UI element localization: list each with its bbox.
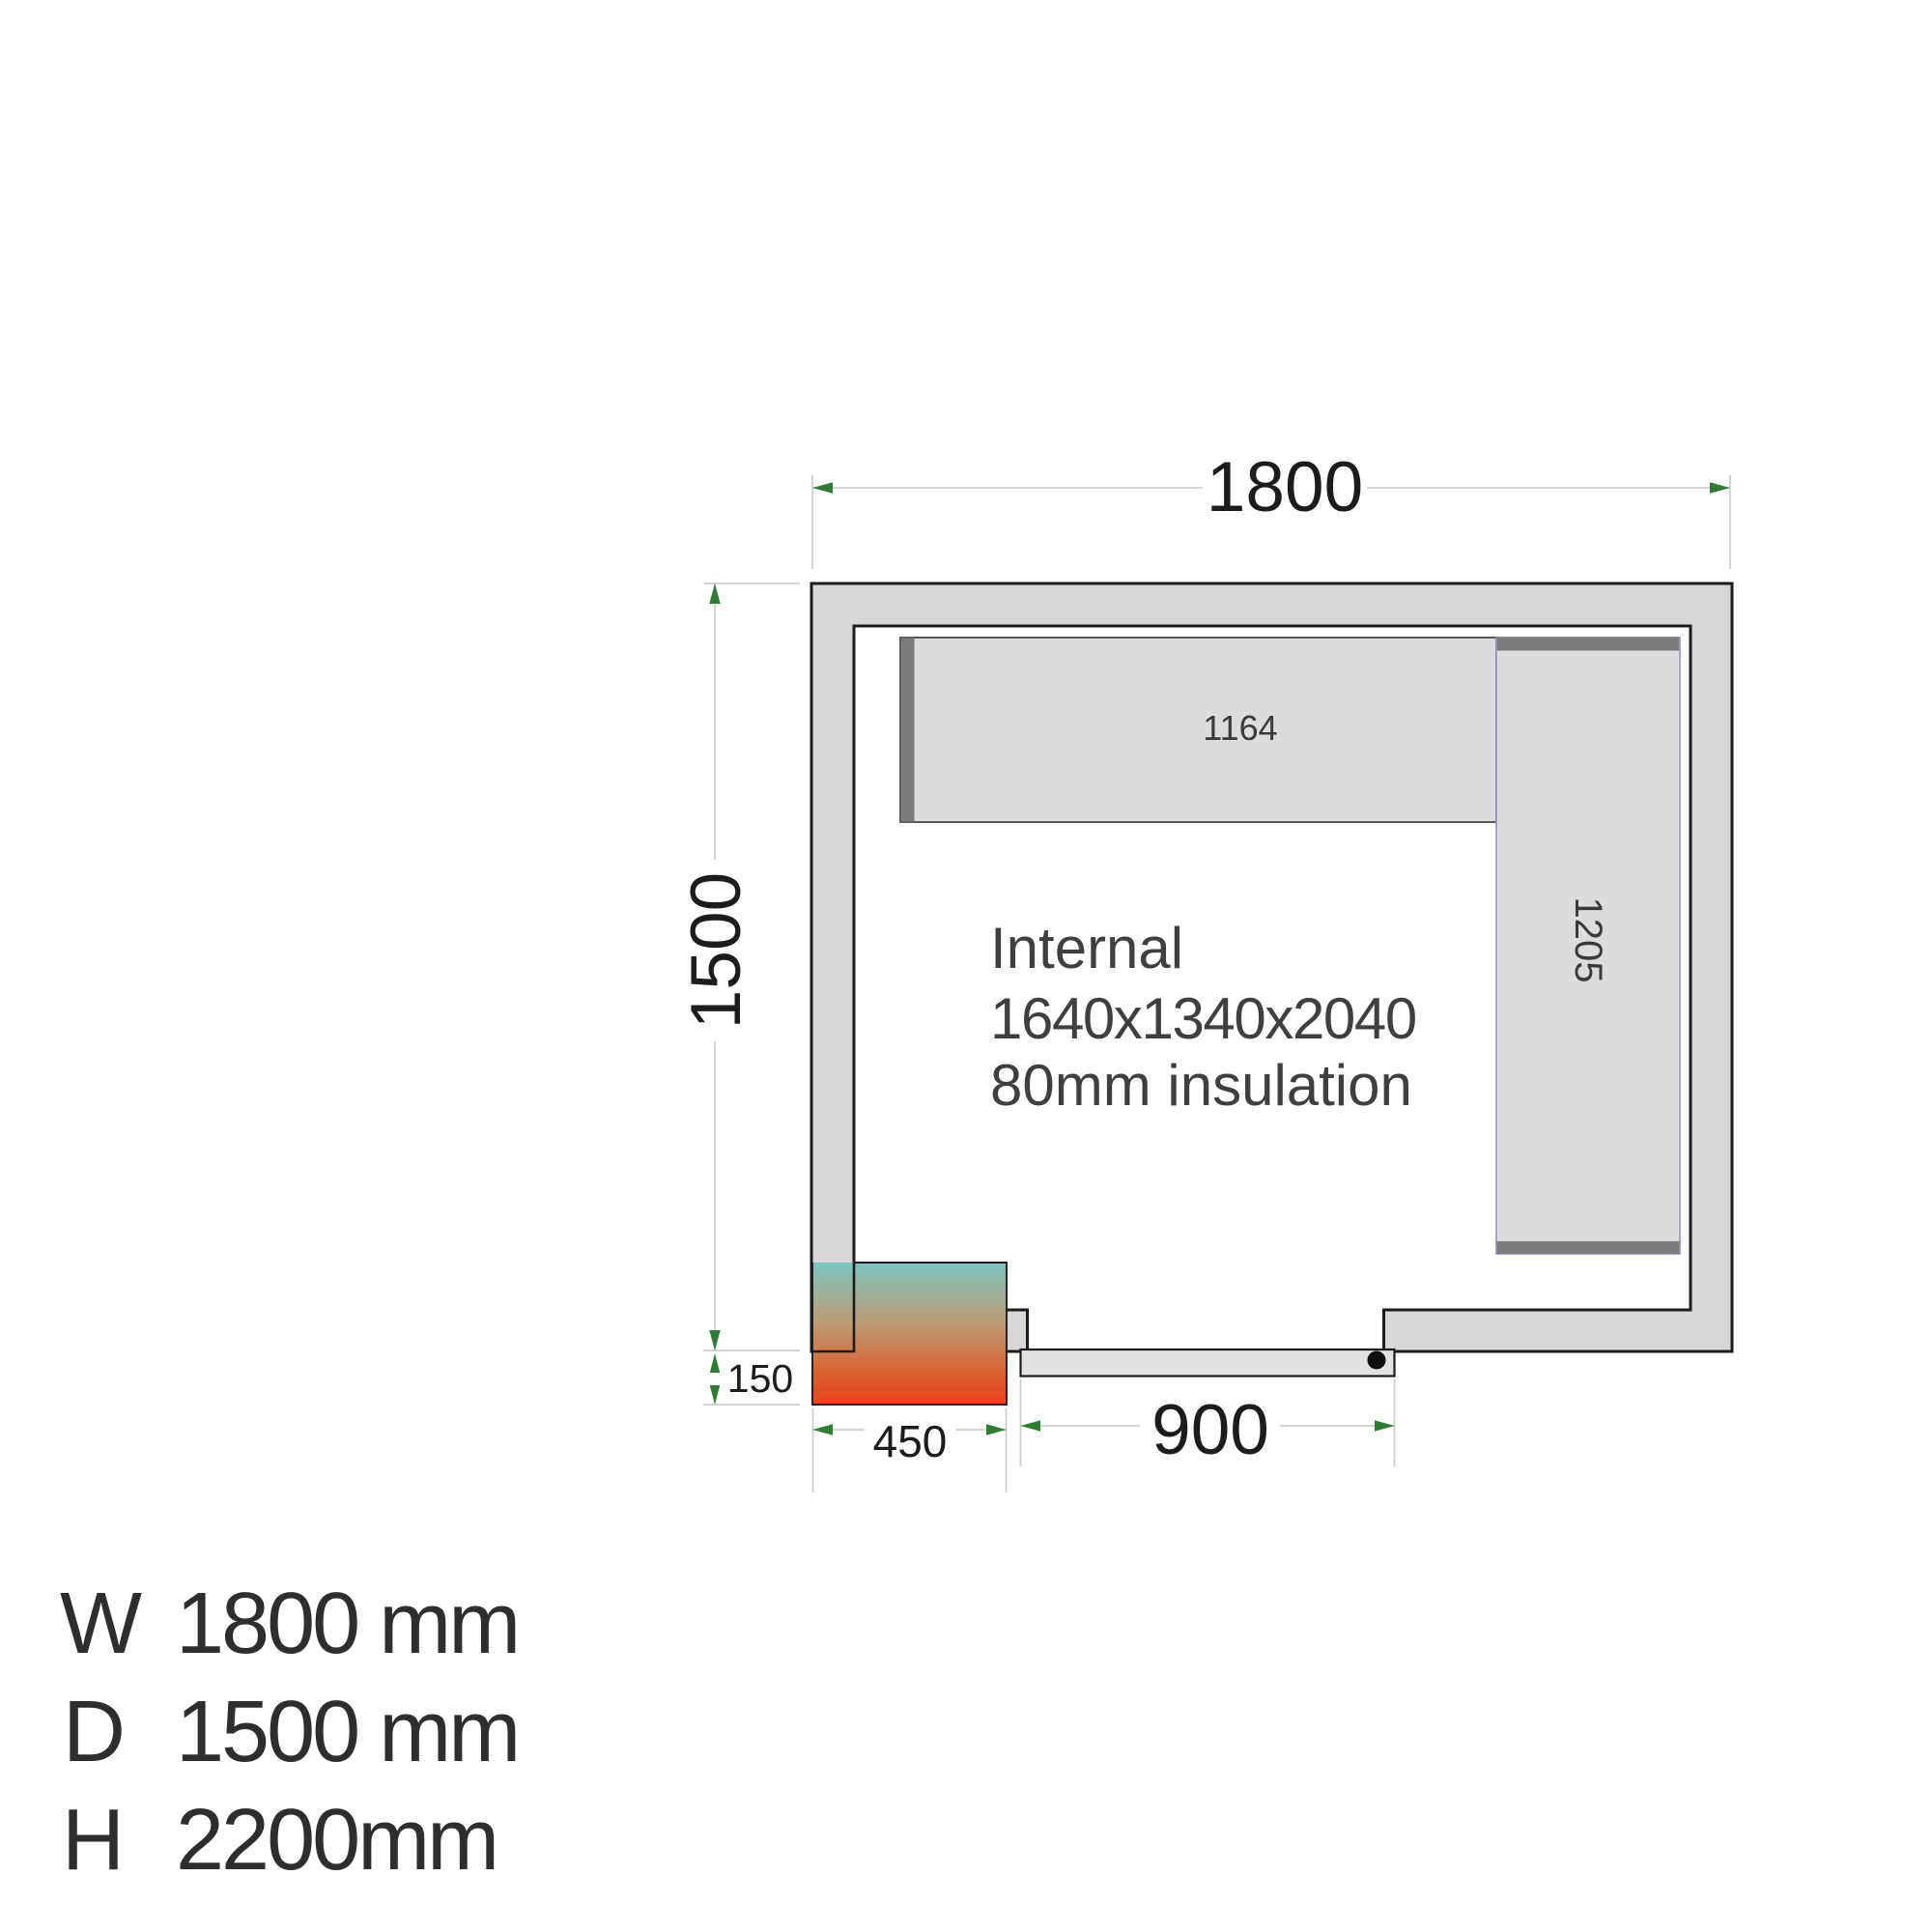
svg-text:D: D — [63, 1684, 126, 1780]
svg-text:150: 150 — [727, 1356, 793, 1401]
svg-text:1800 mm: 1800 mm — [176, 1576, 518, 1672]
svg-text:900: 900 — [1151, 1391, 1269, 1469]
svg-text:1640x1340x2040: 1640x1340x2040 — [990, 986, 1416, 1051]
svg-text:W: W — [60, 1576, 142, 1672]
svg-text:2200mm: 2200mm — [176, 1792, 497, 1889]
svg-text:80mm insulation: 80mm insulation — [990, 1053, 1412, 1118]
svg-text:1500 mm: 1500 mm — [176, 1684, 518, 1780]
svg-text:1800: 1800 — [1207, 448, 1363, 526]
svg-text:1500: 1500 — [677, 872, 755, 1029]
svg-text:H: H — [62, 1792, 125, 1889]
svg-text:450: 450 — [873, 1416, 948, 1466]
svg-text:Internal: Internal — [990, 916, 1183, 980]
svg-text:1164: 1164 — [1203, 708, 1277, 748]
svg-text:1205: 1205 — [1567, 897, 1609, 983]
